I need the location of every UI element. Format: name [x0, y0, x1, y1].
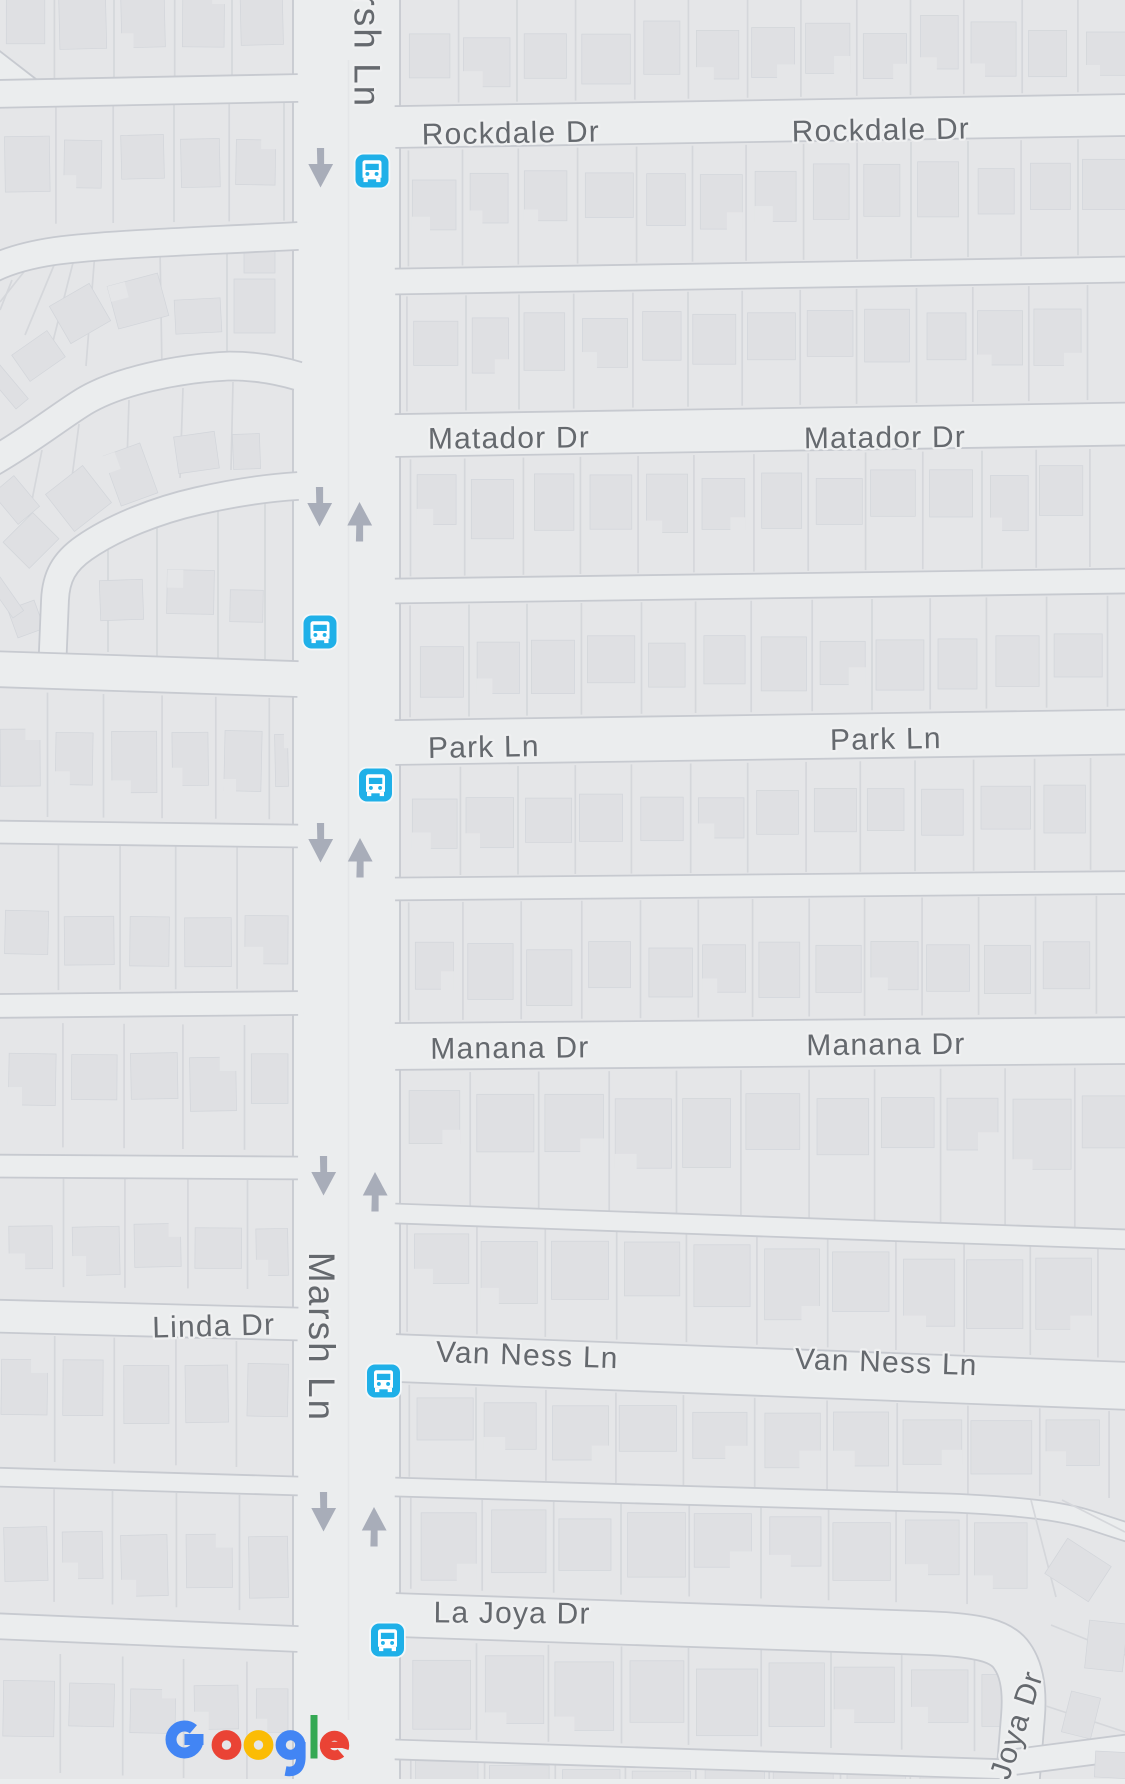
svg-text:Manana Dr: Manana Dr	[806, 1028, 966, 1062]
svg-text:Rockdale Dr: Rockdale Dr	[791, 112, 970, 148]
svg-text:Marsh Ln: Marsh Ln	[347, 0, 388, 108]
svg-text:Linda Dr: Linda Dr	[152, 1308, 276, 1344]
svg-text:Van Ness Ln: Van Ness Ln	[794, 1343, 978, 1382]
svg-text:La Joya Dr: La Joya Dr	[433, 1596, 590, 1630]
svg-text:Park Ln: Park Ln	[830, 722, 942, 757]
svg-text:Van Ness Ln: Van Ness Ln	[435, 1336, 619, 1375]
svg-text:Matador Dr: Matador Dr	[804, 421, 966, 455]
svg-text:Matador Dr: Matador Dr	[428, 421, 590, 455]
svg-text:Park Ln: Park Ln	[428, 730, 540, 765]
svg-text:Manana Dr: Manana Dr	[430, 1031, 590, 1065]
svg-text:Marsh Ln: Marsh Ln	[301, 1252, 342, 1422]
svg-text:Rockdale Dr: Rockdale Dr	[421, 115, 600, 151]
